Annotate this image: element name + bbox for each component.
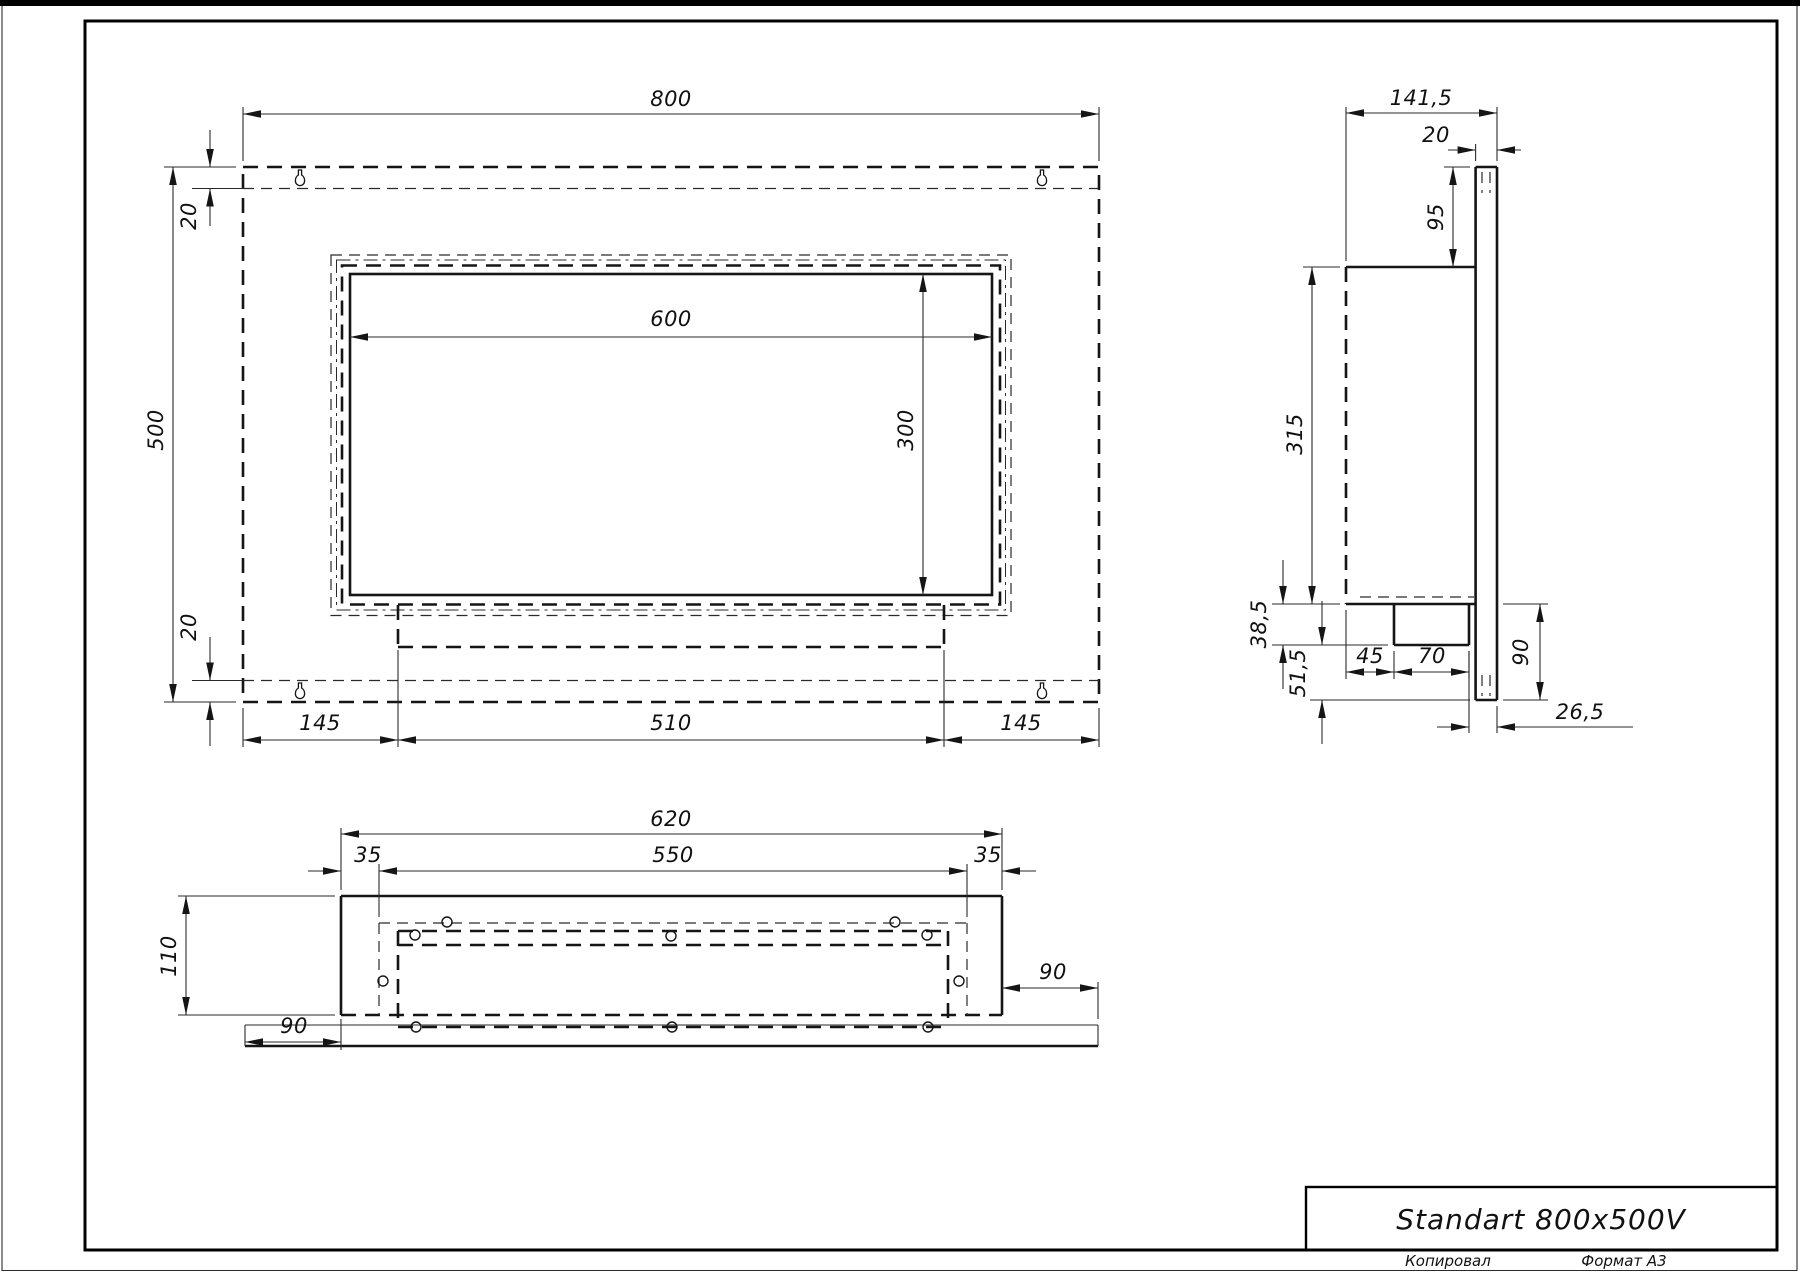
dim-tray-width: 70: [1418, 644, 1446, 668]
dim-front-bottom-offset: 20: [177, 613, 201, 641]
dim-bottom-outer-width: 620: [650, 807, 692, 831]
keyhole-icon: [1037, 683, 1046, 699]
front-view-outline: [243, 167, 1099, 702]
dim-burner-width: 510: [650, 711, 692, 735]
dim-front-height: 500: [144, 409, 168, 451]
keyhole-icon: [1037, 170, 1046, 186]
side-view-dimensions: 141,5 20 95 315 38,5 51,5: [1247, 86, 1633, 744]
bottom-view-outline: [245, 896, 1098, 1046]
dim-box-height: 315: [1283, 413, 1307, 455]
keyhole-icon: [295, 683, 304, 699]
dim-tray-to-edge: 26,5: [1556, 700, 1605, 724]
dim-bottom-left-side: 35: [354, 843, 382, 867]
bottom-view: 620 35 550 35 110 90 90: [157, 807, 1098, 1050]
bottom-view-dimensions: 620 35 550 35 110 90 90: [157, 807, 1098, 1050]
dim-lower-height: 51,5: [1286, 649, 1310, 698]
dim-opening-width: 600: [650, 307, 692, 331]
drawing-sheet: Standart 800x500V Копировал Формат A3: [0, 0, 1800, 1273]
dim-wing-left: 90: [280, 1014, 308, 1038]
stamp-copied-label: Копировал: [1405, 1252, 1491, 1270]
dim-bottom-right-side: 35: [974, 843, 1002, 867]
dim-front-left-margin: 145: [299, 711, 341, 735]
dim-plate-thickness: 20: [1422, 123, 1450, 147]
dim-front-width: 800: [650, 87, 692, 111]
front-view: 800 500 20 20 600 300: [144, 87, 1099, 747]
dim-bottom-inner-width: 550: [652, 843, 694, 867]
dim-plate-below-box: 90: [1509, 638, 1533, 666]
side-view: 141,5 20 95 315 38,5 51,5: [1247, 86, 1633, 744]
stamp-format-label: Формат A3: [1581, 1252, 1666, 1270]
dim-tray-offset: 45: [1356, 644, 1384, 668]
drawing-canvas: Standart 800x500V Копировал Формат A3: [0, 0, 1800, 1273]
dim-top-to-box: 95: [1424, 203, 1448, 231]
dim-opening-height: 300: [894, 409, 918, 451]
drawing-frame: [85, 21, 1777, 1250]
dim-bottom-depth: 110: [157, 935, 181, 977]
drawing-title: Standart 800x500V: [1396, 1203, 1686, 1236]
dim-front-right-margin: 145: [1000, 711, 1042, 735]
side-view-outline: [1346, 167, 1497, 700]
dim-shelf-height: 38,5: [1247, 600, 1271, 649]
dim-side-depth: 141,5: [1390, 86, 1453, 110]
dim-wing-right: 90: [1039, 960, 1067, 984]
sheet-edges: [0, 0, 1800, 1271]
title-block: Standart 800x500V Копировал Формат A3: [1306, 1187, 1777, 1270]
dim-front-top-offset: 20: [177, 202, 201, 230]
keyhole-icon: [295, 170, 304, 186]
